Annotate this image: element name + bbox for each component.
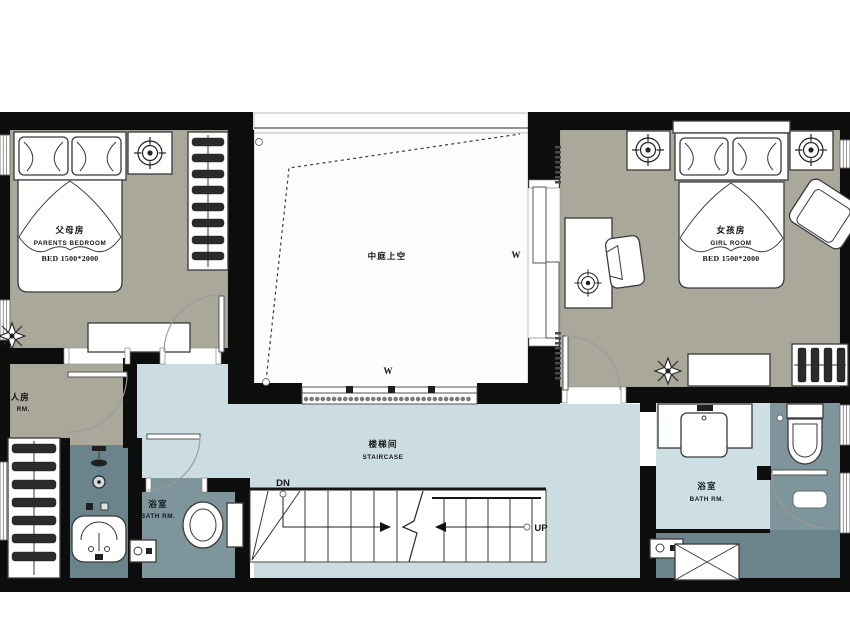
parents-wardrobe <box>188 132 228 270</box>
bath-right-label-en: BATH RM. <box>690 496 725 503</box>
stair-hall-label-en: STAIRCASE <box>363 454 404 461</box>
sliding-door <box>529 180 559 346</box>
stair-up-label: UP <box>534 523 548 534</box>
stair-hall-label-zh: 楼梯间 <box>368 439 397 449</box>
staircase: DN UP <box>250 478 548 562</box>
bath-left-label-en: BATH RM. <box>141 513 176 520</box>
toilet <box>183 502 243 548</box>
girl-bed: 女孩房 GIRL ROOM BED 1500*2000 <box>675 133 788 288</box>
window-icon <box>840 140 850 168</box>
bath-right-label-zh: 浴室 <box>697 481 716 491</box>
girl-dresser <box>792 344 848 386</box>
control-icon <box>101 503 108 510</box>
void-corner-marker <box>256 139 263 146</box>
control-icon <box>86 503 93 510</box>
stair-down-label: DN <box>276 478 290 489</box>
shower-head-icon <box>91 460 107 467</box>
plant-icon <box>655 358 681 384</box>
bath-left-label-zh: 浴室 <box>148 499 167 509</box>
girl-bed-pelmet <box>673 121 790 133</box>
side-room-label-en: RM. <box>17 406 30 413</box>
atrium-top-band <box>254 113 528 133</box>
shower-tray <box>675 544 739 580</box>
parents-bench <box>88 323 190 352</box>
parents-room-label-en: PARENTS BEDROOM <box>34 240 107 247</box>
parents-nightstand <box>128 132 172 174</box>
small-sink <box>130 540 156 562</box>
parents-room-label-zh: 父母房 <box>54 225 84 235</box>
bath-mat <box>793 491 827 508</box>
shower-head-icon <box>92 446 106 451</box>
atrium-railing <box>302 386 477 404</box>
girl-bed-spec: BED 1500*2000 <box>703 254 760 263</box>
floor-plan-canvas: 中庭上空 W W <box>0 0 850 637</box>
window-icon <box>0 135 10 175</box>
girl-room-label-zh: 女孩房 <box>716 225 745 235</box>
stair-start-marker <box>524 524 530 530</box>
drain-icon <box>97 480 101 484</box>
window-mark-bottom: W <box>384 366 393 376</box>
side-room-label-zh: 人房 <box>11 392 30 402</box>
girl-nightstand-left <box>627 131 670 170</box>
girl-desk <box>565 218 612 308</box>
wash-basin <box>72 516 126 562</box>
stair-start-marker <box>280 491 286 497</box>
closet-wardrobe <box>8 438 60 578</box>
window-mark-right: W <box>512 250 521 260</box>
atrium-label: 中庭上空 <box>368 251 407 261</box>
parents-bed-spec: BED 1500*2000 <box>42 254 99 263</box>
girl-nightstand-right <box>790 131 833 170</box>
desk-chair <box>605 235 646 289</box>
parents-bed: 父母房 PARENTS BEDROOM BED 1500*2000 <box>14 132 126 292</box>
floor-plan-page: 中庭上空 W W <box>0 0 850 637</box>
window-icon <box>840 473 850 533</box>
girl-bench <box>688 354 770 386</box>
girl-room-label-en: GIRL ROOM <box>710 240 751 247</box>
window-icon <box>840 405 850 445</box>
void-corner-marker <box>263 379 270 386</box>
